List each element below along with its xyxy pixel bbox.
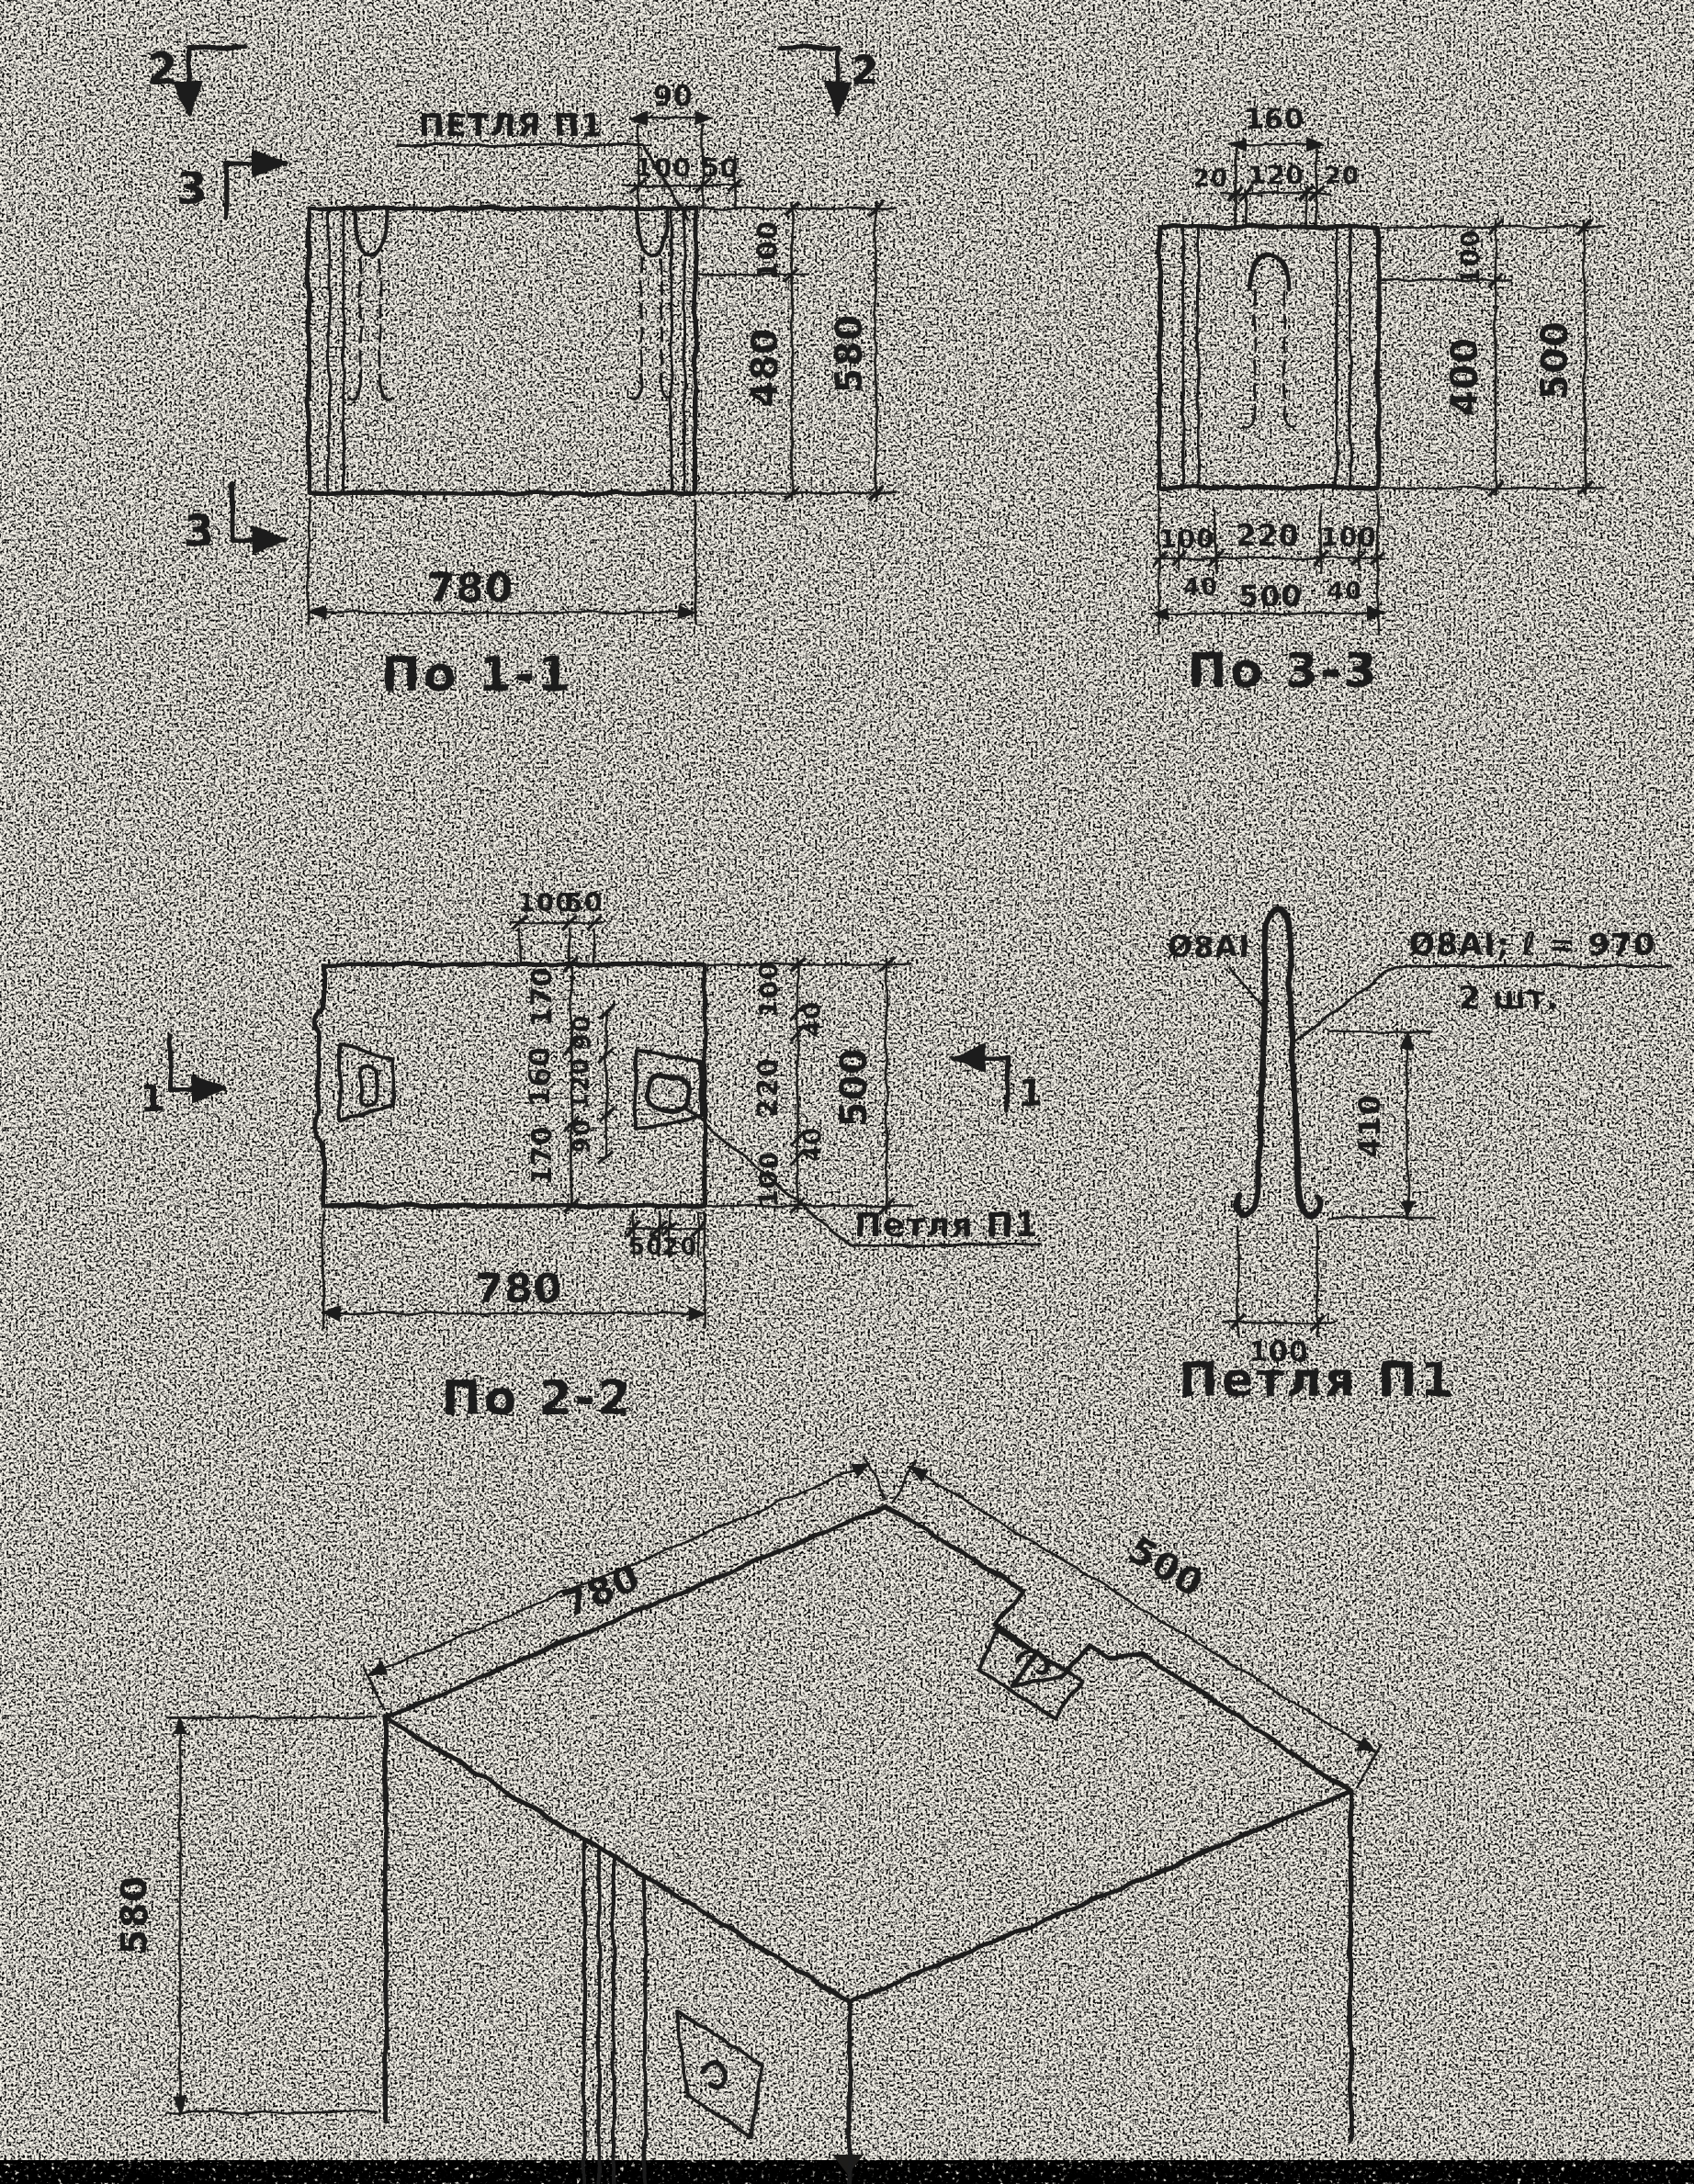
dim-right-40-top: 40 bbox=[799, 1002, 827, 1037]
dim-right-220: 220 bbox=[752, 1057, 785, 1118]
dim-right-400: 400 bbox=[1444, 337, 1486, 417]
dim-bottom-100-right: 100 bbox=[1320, 522, 1376, 552]
dim-bottom-780: 780 bbox=[427, 565, 514, 612]
dim-top-50: 50 bbox=[566, 887, 604, 918]
dim-right-480: 480 bbox=[744, 328, 786, 408]
view-title-2-2: По 2-2 bbox=[441, 1371, 633, 1426]
dim-recess-90-bottom: 90 bbox=[569, 1119, 596, 1154]
dim-100: 100 bbox=[635, 152, 691, 183]
dim-top-160: 160 bbox=[1244, 104, 1304, 136]
dim-90: 90 bbox=[653, 81, 694, 113]
dim-right-500: 500 bbox=[1534, 321, 1576, 400]
marker-digit-3-bottom: 3 bbox=[184, 506, 217, 557]
dim-right-100-top: 100 bbox=[753, 961, 784, 1017]
dim-right-100-bottom: 100 bbox=[753, 1151, 784, 1207]
dim-top-20-right: 20 bbox=[1325, 163, 1360, 190]
dim-50: 50 bbox=[702, 152, 740, 183]
dim-top-120: 120 bbox=[1248, 160, 1304, 190]
view-title-loop: Петля П1 bbox=[1179, 1353, 1456, 1408]
bar-mark-label: Ø8АI bbox=[1168, 929, 1250, 964]
marker-digit-1-right: 1 bbox=[1018, 1073, 1045, 1115]
drawing-canvas: ПЕТЛЯ П1 90 100 50 100 480 580 780 По 1-… bbox=[0, 0, 1694, 2184]
dim-bottom-40-left: 40 bbox=[1183, 574, 1218, 602]
dim-tab-20: 20 bbox=[662, 1233, 697, 1261]
view-title-1-1: По 1-1 bbox=[380, 647, 572, 703]
dim-bottom-100-left: 100 bbox=[1158, 523, 1214, 554]
marker-digit-2-right: 2 bbox=[851, 48, 880, 95]
marker-digit-2-left: 2 bbox=[147, 44, 180, 96]
dim-recess-90-top: 90 bbox=[569, 1015, 596, 1050]
dim-loop-410: 410 bbox=[1352, 1094, 1387, 1158]
dim-right-580: 580 bbox=[829, 314, 871, 394]
dim-inner-160: 160 bbox=[525, 1046, 557, 1107]
marker-digit-1-left: 1 bbox=[140, 1078, 166, 1120]
dim-recess-120: 120 bbox=[567, 1057, 594, 1109]
dim-inner-170-top: 170 bbox=[526, 966, 559, 1027]
dim-bottom-500: 500 bbox=[1238, 579, 1303, 614]
dim-top-20-left: 20 bbox=[1193, 165, 1228, 193]
scanned-drawing-sheet: ПЕТЛЯ П1 90 100 50 100 480 580 780 По 1-… bbox=[0, 0, 1694, 2184]
dim-right-500: 500 bbox=[833, 1048, 875, 1128]
loop-bar-callout: Ø8АI; ℓ = 970 bbox=[1408, 927, 1655, 963]
loop-quantity: 2 шт. bbox=[1458, 980, 1558, 1017]
view-title-3-3: По 3-3 bbox=[1187, 644, 1379, 699]
dim-right-100: 100 bbox=[1455, 229, 1485, 285]
dim-right-100: 100 bbox=[752, 220, 785, 280]
loop-callout-label-plan: Петля П1 bbox=[854, 1207, 1039, 1244]
marker-digit-3-top: 3 bbox=[176, 163, 209, 215]
dim-bottom-40-right: 40 bbox=[1327, 578, 1362, 605]
loop-callout-label: ПЕТЛЯ П1 bbox=[418, 107, 603, 144]
dim-right-40-bottom: 40 bbox=[799, 1127, 827, 1162]
dim-bottom-220: 220 bbox=[1236, 518, 1300, 553]
dim-iso-580: 580 bbox=[114, 1875, 156, 1955]
dim-bottom-780: 780 bbox=[476, 1266, 563, 1312]
dim-tab-50: 50 bbox=[628, 1233, 663, 1261]
dim-inner-170-bottom: 170 bbox=[526, 1125, 559, 1186]
